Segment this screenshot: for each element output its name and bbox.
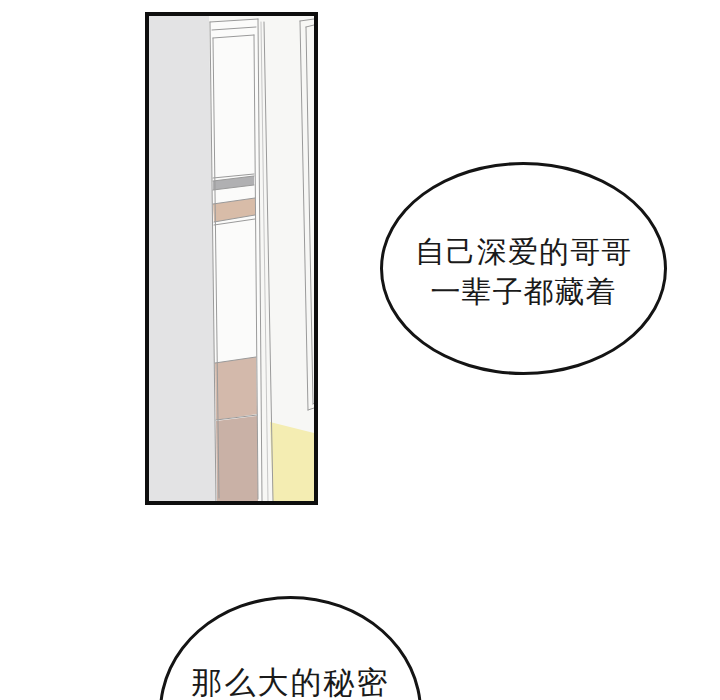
- speech-line: 那么大的秘密: [192, 665, 390, 700]
- speech-bubble-top: 自己深爱的哥哥 一辈子都藏着: [380, 162, 667, 375]
- speech-bubble-bottom: 那么大的秘密: [159, 596, 422, 700]
- doorway-illustration: [149, 16, 314, 501]
- doorway-panel: [145, 12, 318, 505]
- floor-light: [270, 422, 314, 501]
- speech-line: 一辈子都藏着: [415, 272, 632, 312]
- speech-line: 自己深爱的哥哥: [415, 232, 632, 272]
- left-wall: [149, 16, 217, 501]
- right-frame-bottom-2: [313, 403, 314, 404]
- speech-text-top: 自己深爱的哥哥 一辈子都藏着: [415, 232, 632, 312]
- tan-panel-upper: [215, 357, 257, 420]
- comic-page: 自己深爱的哥哥 一辈子都藏着 那么大的秘密: [0, 0, 720, 700]
- tan-panel-lower: [216, 416, 258, 501]
- speech-text-bottom: 那么大的秘密: [192, 665, 390, 700]
